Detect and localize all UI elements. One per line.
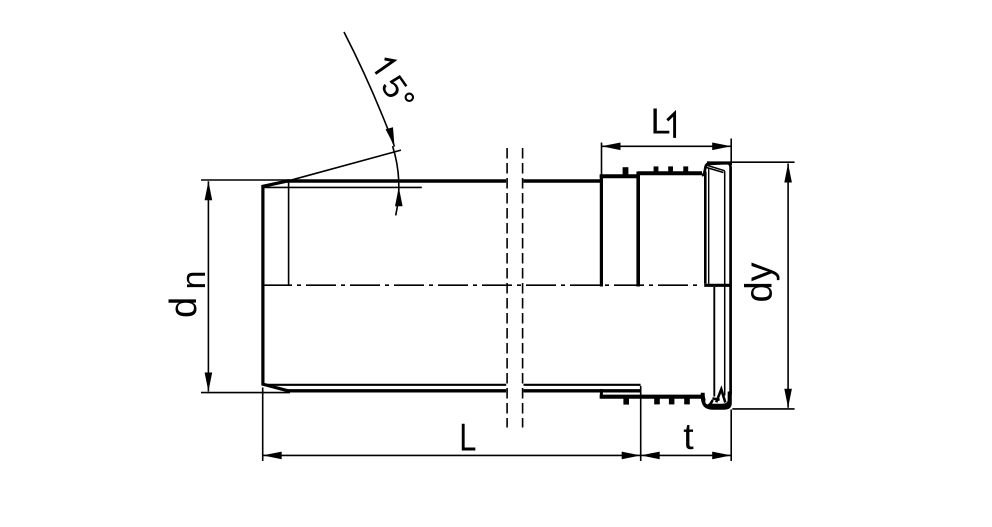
svg-text:L: L [651,100,671,141]
svg-text:d: d [163,297,205,318]
svg-text:L: L [459,416,476,459]
svg-text:dy: dy [739,262,781,302]
svg-text:n: n [175,271,213,290]
svg-text:t: t [683,415,694,457]
